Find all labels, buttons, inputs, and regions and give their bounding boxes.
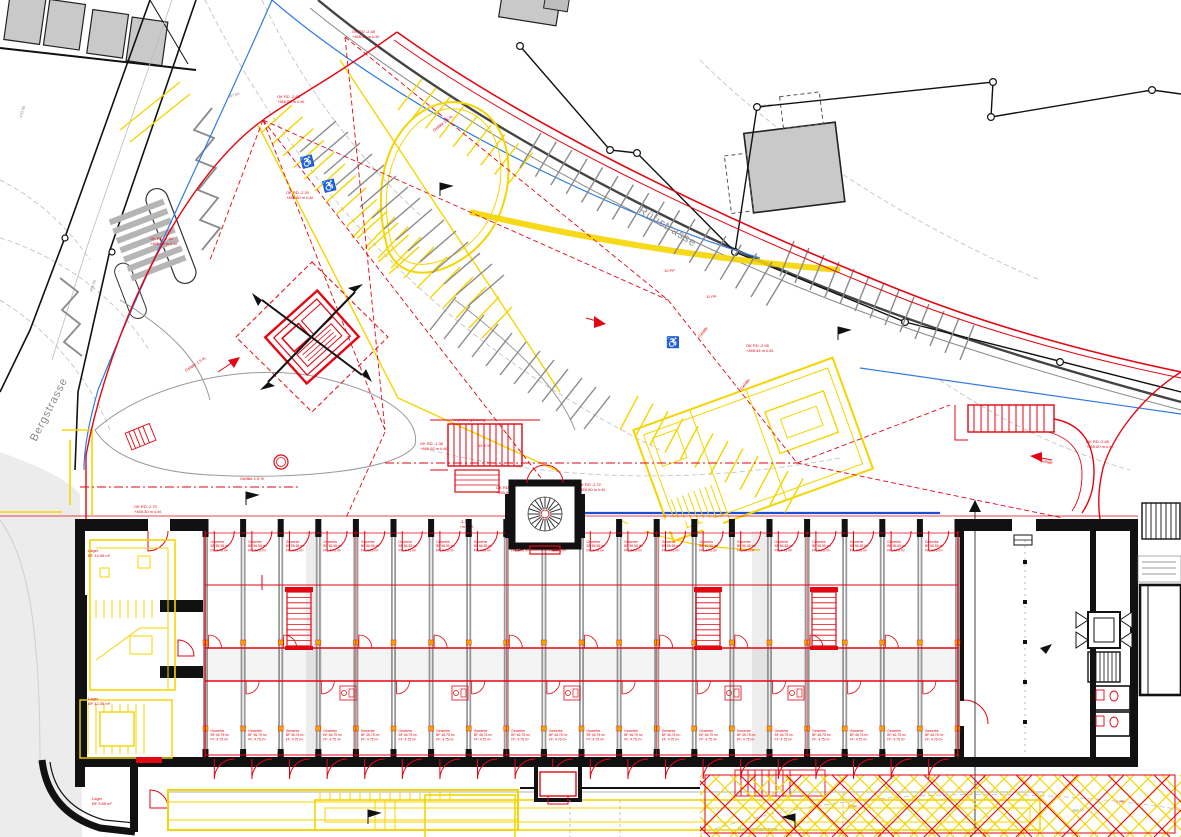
bay-wall	[654, 519, 660, 759]
svg-text:♿: ♿	[666, 336, 680, 349]
site-plan-drawing: 470.00 469.00 468.50 467.00 466.00 468.0…	[0, 0, 1181, 837]
svg-text:+465.44 m ü.M.: +465.44 m ü.M.	[746, 348, 774, 353]
svg-text:+465.60 m ü.M.: +465.60 m ü.M.	[1086, 444, 1114, 449]
svg-text:BF 12.35 m²: BF 12.35 m²	[88, 701, 111, 706]
svg-text:+465.60 m ü.M.: +465.60 m ü.M.	[578, 487, 606, 492]
ramp-grade-label: 19.5 %	[478, 443, 491, 448]
svg-text:BF 14.05 m²: BF 14.05 m²	[88, 553, 111, 558]
svg-text:BF 9.85 m²: BF 9.85 m²	[92, 801, 112, 806]
bay-wall	[353, 519, 359, 759]
bay-wall	[804, 519, 810, 759]
road-verge	[0, 452, 82, 837]
svg-text:+465.80 m ü.M.: +465.80 m ü.M.	[286, 195, 314, 200]
note-label: Vorplatzergänzung	[452, 417, 485, 422]
south-entry-structure	[536, 767, 580, 804]
parking-count: 11 PP	[706, 294, 717, 299]
svg-text:+465.50 m ü.M.: +465.50 m ü.M.	[352, 34, 380, 39]
svg-text:+465.00 m ü.M.: +465.00 m ü.M.	[277, 99, 305, 104]
bay-wall	[503, 519, 509, 759]
slope-label: Gefälle 1.5 %	[240, 476, 264, 481]
parking-count: 10 PP	[664, 268, 675, 273]
svg-text:+465.30 m ü.M.: +465.30 m ü.M.	[134, 509, 162, 514]
plan-canvas: 470.00 469.00 468.50 467.00 466.00 468.0…	[0, 0, 1181, 837]
svg-text:+466.02 m ü.M.: +466.02 m ü.M.	[420, 446, 448, 451]
svg-text:+465.50 m ü.M.: +465.50 m ü.M.	[150, 241, 178, 246]
